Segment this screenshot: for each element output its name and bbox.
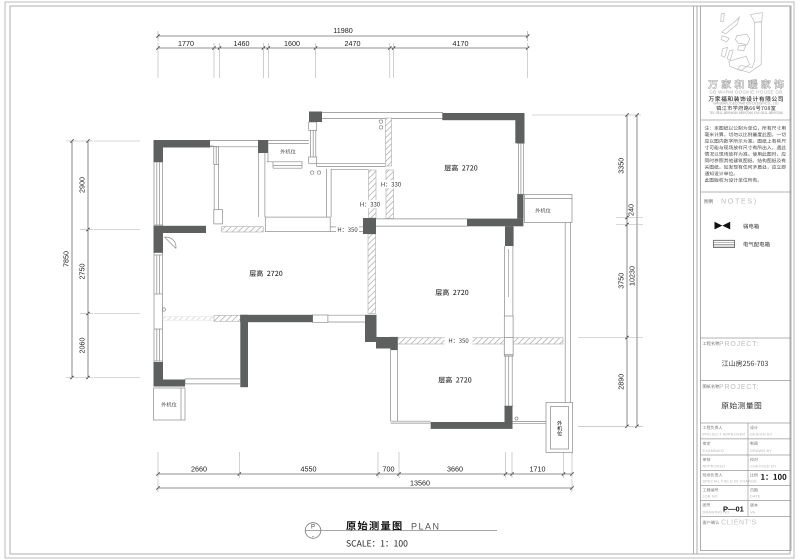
svg-text:2470: 2470 [345,39,361,48]
svg-text:1460: 1460 [234,39,250,48]
svg-text:2660: 2660 [191,465,207,474]
svg-text:2900: 2900 [78,177,87,193]
svg-text:PROJECT:: PROJECT: [719,341,759,348]
svg-text:P—01: P—01 [723,505,744,514]
svg-text:DRAWN BY: DRAWN BY [750,449,772,453]
svg-text:GB WARM DOGKIE HOUSE GB: GB WARM DOGKIE HOUSE GB [709,89,782,94]
svg-text:3660: 3660 [447,465,463,474]
svg-text:SPECIAL FIELD IN CHARGE: SPECIAL FIELD IN CHARGE [703,479,758,483]
svg-text:EXAMINED: EXAMINED [703,449,724,453]
svg-text:DATE: DATE [750,494,761,498]
svg-text:VA: VA [750,510,755,514]
svg-text:JOB NO: JOB NO [703,494,718,498]
svg-text:2060: 2060 [78,338,87,354]
svg-text:700: 700 [383,465,395,474]
svg-text:P: P [311,525,315,531]
svg-text:11980: 11980 [333,26,352,35]
svg-text:CLIENT'S: CLIENT'S [721,520,757,527]
svg-text:240: 240 [627,204,636,216]
svg-text:-: - [312,533,314,540]
svg-text:NOTES): NOTES) [721,197,758,206]
svg-text:DESIGN BY: DESIGN BY [750,433,773,437]
svg-text:7850: 7850 [62,251,71,267]
svg-text:1710: 1710 [530,465,546,474]
svg-text:PROJECT:: PROJECT: [719,384,759,391]
svg-text:3750: 3750 [617,273,626,289]
svg-text:PROJECT APPROVER: PROJECT APPROVER [703,433,746,437]
svg-text:3350: 3350 [617,158,626,174]
svg-text:CHECKED BY: CHECKED BY [750,464,777,468]
svg-text:PLAN: PLAN [411,522,441,532]
svg-text:2750: 2750 [78,264,87,280]
svg-text:1600: 1600 [284,39,300,48]
svg-text:WANJIAFU DECORATION DESIGN CO.: WANJIAFU DECORATION DESIGN CO., LTD [713,102,779,106]
svg-text:13560: 13560 [410,479,430,488]
svg-text:2890: 2890 [617,374,626,390]
svg-text:TEL:0511-88996066 88997066 FA: TEL:0511-88996066 88997066 FAX:0511-8899… [709,111,783,115]
svg-text:APPROVED: APPROVED [703,464,726,468]
svg-text:4550: 4550 [301,465,317,474]
svg-text:4170: 4170 [453,39,469,48]
svg-text:1770: 1770 [178,39,194,48]
svg-text:10230: 10230 [627,266,636,286]
